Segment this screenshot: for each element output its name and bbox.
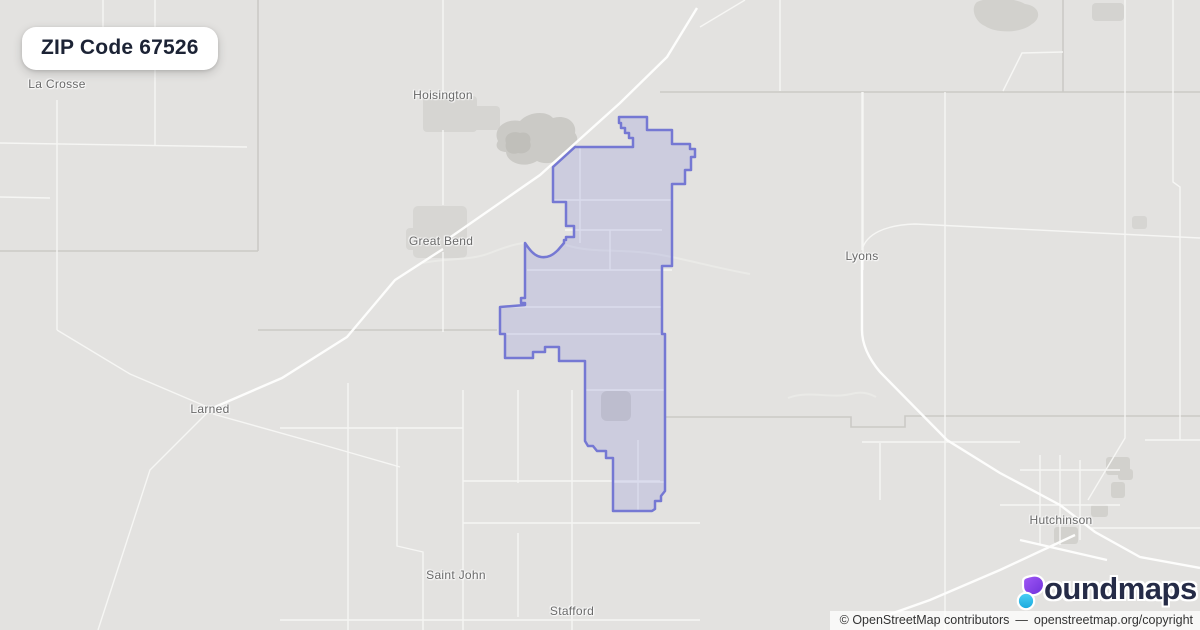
boundmaps-logo: oundmaps <box>1016 572 1197 611</box>
major-highways <box>215 8 1200 622</box>
urban-area-patches <box>406 0 1147 544</box>
boundmaps-wordmark: oundmaps <box>1044 572 1197 606</box>
attribution-separator: — <box>1015 613 1028 627</box>
map-canvas[interactable]: La Crosse Hoisington Great Bend Lyons La… <box>0 0 1200 630</box>
attribution-bar: © OpenStreetMap contributors—openstreetm… <box>830 611 1200 630</box>
attribution-copyright-link[interactable]: openstreetmap.org/copyright <box>1034 613 1193 627</box>
boundmaps-b-icon <box>1016 573 1046 611</box>
zip-code-badge: ZIP Code 67526 <box>22 27 218 70</box>
city-label-hoisington: Hoisington <box>413 88 473 102</box>
attribution-text: © OpenStreetMap contributors <box>840 613 1010 627</box>
city-label-hutchinson: Hutchinson <box>1029 513 1092 527</box>
city-label-great-bend: Great Bend <box>409 234 473 248</box>
zip-code-badge-title: ZIP Code 67526 <box>41 36 199 59</box>
city-label-stafford: Stafford <box>550 604 594 618</box>
city-label-lyons: Lyons <box>845 249 878 263</box>
city-label-la-crosse: La Crosse <box>28 77 85 91</box>
zip-boundary-polygon[interactable] <box>500 117 695 511</box>
base-map <box>0 0 1200 630</box>
city-label-larned: Larned <box>190 402 229 416</box>
city-label-saint-john: Saint John <box>426 568 486 582</box>
